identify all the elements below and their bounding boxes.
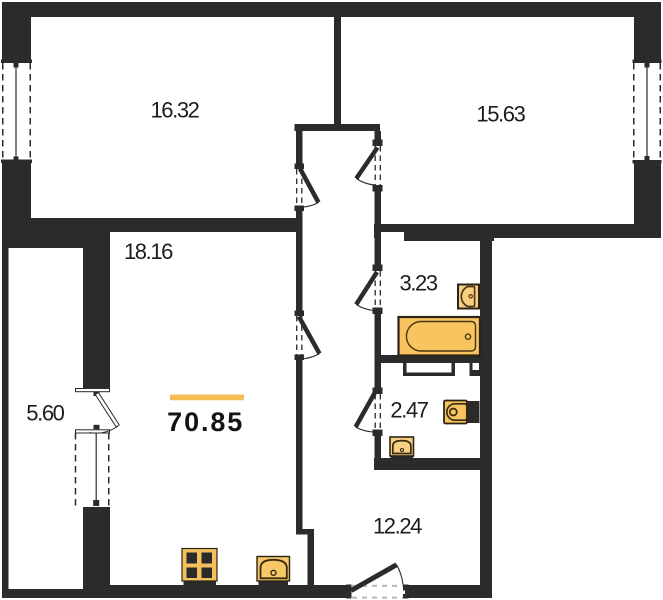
svg-text:15.63: 15.63 — [476, 101, 525, 126]
svg-text:18.16: 18.16 — [124, 239, 173, 264]
svg-text:16.32: 16.32 — [150, 98, 199, 123]
svg-text:70.85: 70.85 — [167, 407, 244, 437]
svg-text:2.47: 2.47 — [390, 397, 428, 422]
svg-text:12.24: 12.24 — [373, 513, 422, 538]
svg-text:5.60: 5.60 — [26, 401, 64, 426]
svg-text:3.23: 3.23 — [399, 270, 437, 295]
